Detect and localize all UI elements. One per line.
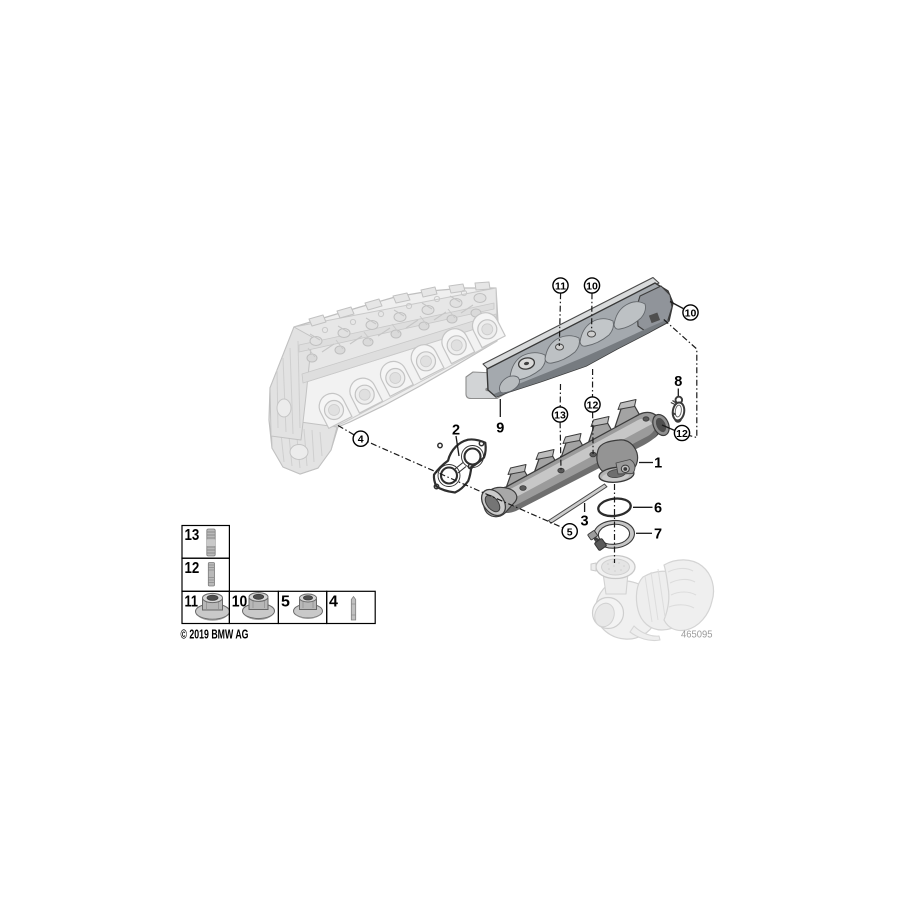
svg-text:4: 4	[329, 594, 338, 611]
svg-text:12: 12	[676, 428, 688, 440]
svg-text:12: 12	[587, 400, 599, 412]
svg-text:1: 1	[654, 456, 662, 472]
svg-text:5: 5	[567, 526, 573, 538]
svg-text:13: 13	[185, 527, 200, 544]
svg-text:7: 7	[654, 527, 662, 543]
svg-text:6: 6	[654, 501, 662, 517]
svg-text:465095: 465095	[681, 629, 713, 641]
svg-text:10: 10	[586, 281, 598, 293]
svg-text:10: 10	[685, 308, 697, 320]
svg-text:3: 3	[581, 514, 589, 530]
svg-text:13: 13	[554, 410, 566, 422]
svg-text:2: 2	[452, 422, 460, 438]
svg-text:11: 11	[555, 281, 566, 293]
svg-text:9: 9	[496, 421, 504, 437]
svg-text:4: 4	[358, 434, 364, 446]
svg-text:12: 12	[185, 560, 200, 577]
svg-text:© 2019 BMW AG: © 2019 BMW AG	[181, 628, 249, 642]
svg-text:11: 11	[185, 594, 199, 611]
svg-text:8: 8	[674, 374, 682, 390]
svg-text:5: 5	[281, 594, 290, 611]
